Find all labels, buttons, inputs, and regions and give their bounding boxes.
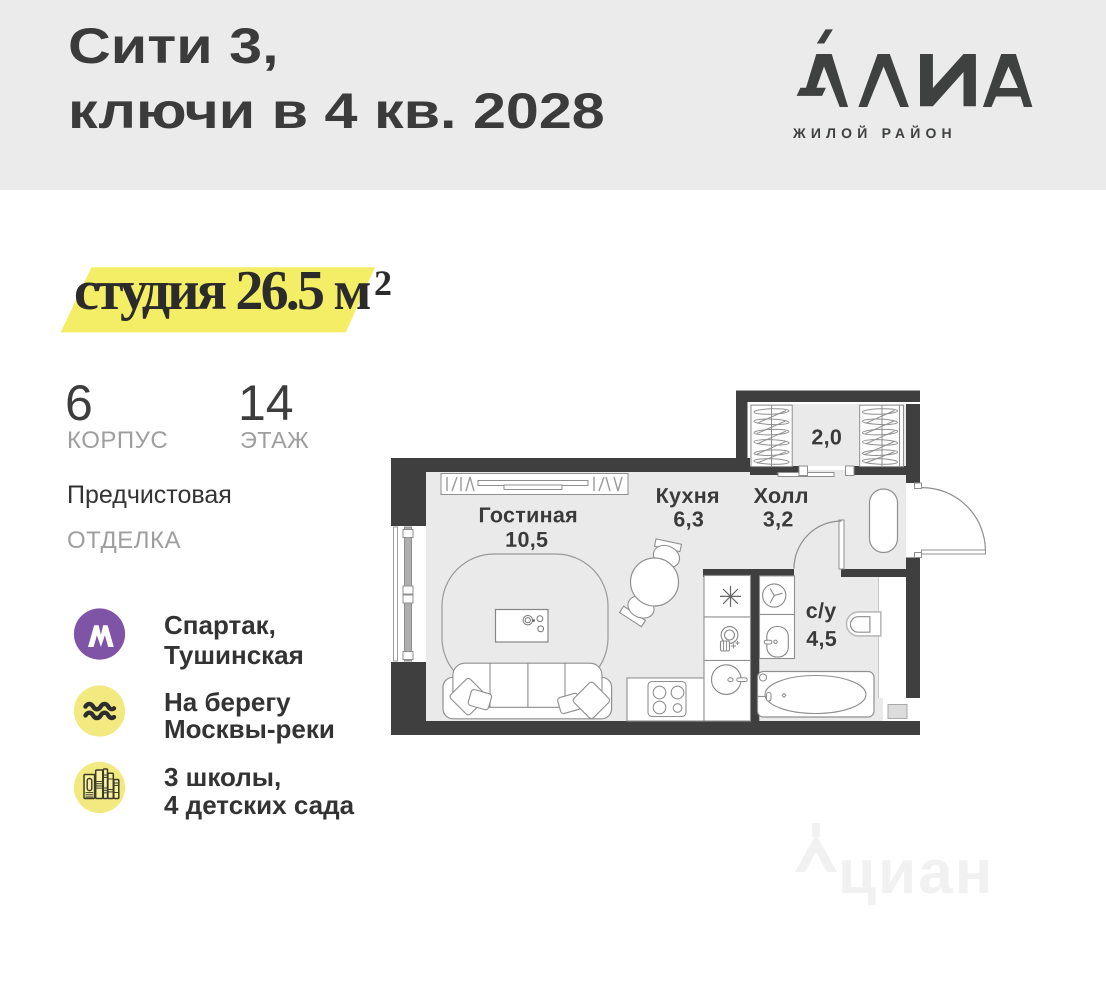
svg-text:4,5: 4,5	[806, 627, 837, 651]
svg-text:Холл: Холл	[754, 484, 809, 508]
svg-text:циан: циан	[838, 838, 994, 907]
svg-text:с/у: с/у	[806, 599, 837, 623]
svg-text:Гостиная: Гостиная	[478, 503, 578, 527]
svg-text:6,3: 6,3	[673, 507, 704, 531]
svg-text:2,0: 2,0	[811, 425, 842, 449]
svg-text:10,5: 10,5	[505, 528, 548, 552]
svg-text:3,2: 3,2	[763, 507, 794, 531]
svg-text:Кухня: Кухня	[656, 484, 720, 508]
